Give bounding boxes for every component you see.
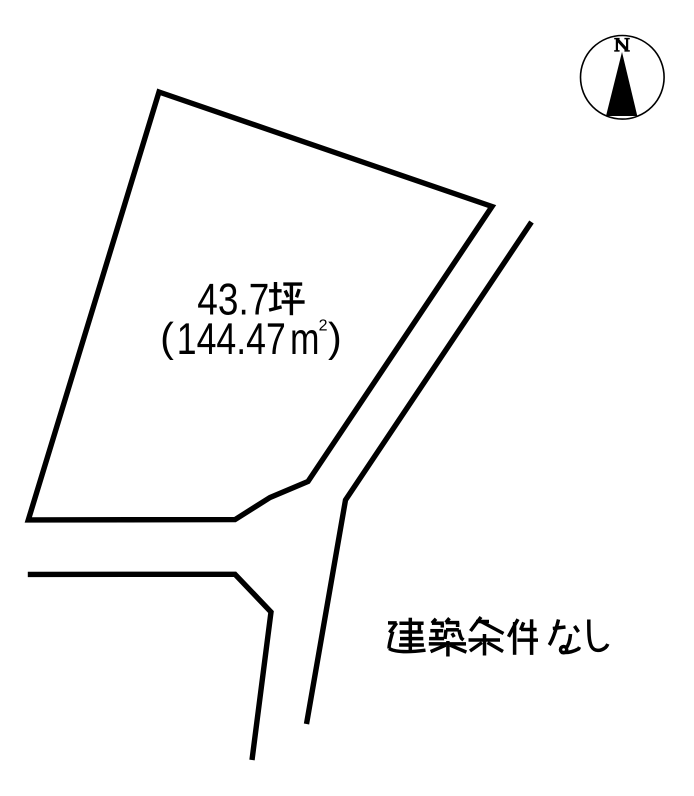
svg-text:2: 2 [319,318,328,335]
svg-text:m: m [290,315,320,364]
svg-text:): ) [328,315,342,361]
svg-text:144.47: 144.47 [177,315,286,364]
svg-text:(: ( [160,315,174,361]
